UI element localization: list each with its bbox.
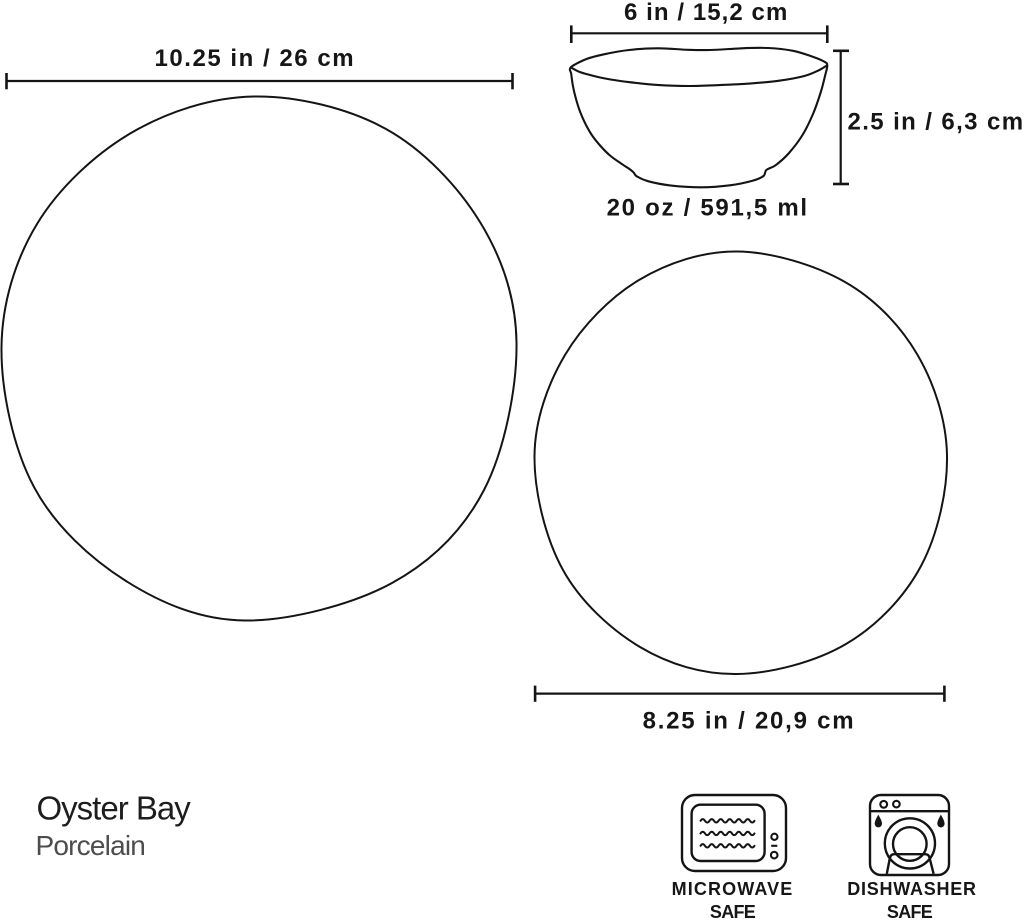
svg-text:DISHWASHER: DISHWASHER [847,879,977,899]
svg-text:SAFE: SAFE [887,902,933,922]
svg-text:6 in / 15,2 cm: 6 in / 15,2 cm [624,0,788,26]
svg-text:8.25 in / 20,9 cm: 8.25 in / 20,9 cm [643,708,856,735]
svg-text:SAFE: SAFE [710,902,756,922]
svg-text:Oyster Bay: Oyster Bay [37,790,192,827]
svg-text:2.5 in / 6,3 cm: 2.5 in / 6,3 cm [848,108,1024,135]
svg-text:10.25 in / 26 cm: 10.25 in / 26 cm [155,45,356,72]
svg-text:MICROWAVE: MICROWAVE [672,879,794,899]
svg-text:Porcelain: Porcelain [36,830,146,861]
svg-text:20 oz / 591,5 ml: 20 oz / 591,5 ml [607,194,809,221]
